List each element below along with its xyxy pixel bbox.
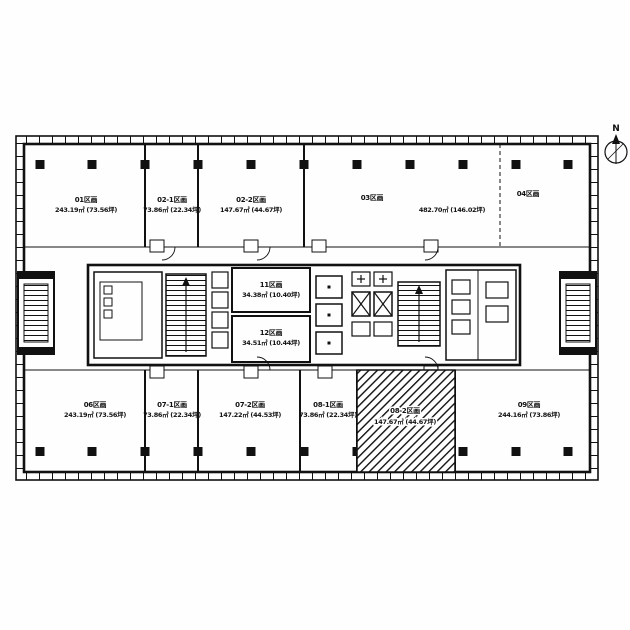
room-labels: 01区画 243.19㎡ (73.56坪) 02-1区画 73.86㎡ (22.… (55, 190, 560, 426)
room-09-area: 244.16㎡ (73.86坪) (498, 410, 560, 419)
floor-plan-page: N 01区画 243.19㎡ (73.56坪) 02-1区画 73.86㎡ (2… (0, 0, 630, 630)
room-02-1-label: 02-1区画 (157, 196, 187, 204)
room-01-label: 01区画 (75, 196, 98, 204)
room-07-1-area: 73.86㎡ (22.34坪) (143, 410, 201, 419)
outer-wall (16, 136, 598, 480)
room-08-2-area: 147.67㎡ (44.67坪) (374, 417, 436, 426)
north-arrow-icon (612, 134, 620, 144)
room-12-label: 12区画 (260, 329, 283, 337)
room-02-1-area: 73.86㎡ (22.34坪) (143, 205, 201, 214)
room-04-label: 04区画 (517, 190, 540, 198)
room-03-area: 482.70㎡ (146.02坪) (419, 205, 486, 214)
room-08-2-label: 08-2区画 (390, 407, 420, 415)
room-11 (232, 268, 310, 312)
door-arc (257, 247, 270, 260)
floor-plan-drawing: N 01区画 243.19㎡ (73.56坪) 02-1区画 73.86㎡ (2… (0, 0, 630, 630)
room-09-label: 09区画 (518, 401, 541, 409)
room-03-label: 03区画 (361, 194, 384, 202)
tenant-partitions (24, 144, 590, 472)
room-07-1-label: 07-1区画 (157, 401, 187, 409)
room-01-area: 243.19㎡ (73.56坪) (55, 205, 117, 214)
room-07-2-label: 07-2区画 (235, 401, 265, 409)
room-11-area: 34.38㎡ (10.40坪) (242, 290, 300, 299)
room-11-label: 11区画 (260, 281, 283, 289)
stairwell-b (398, 282, 440, 346)
room-08-1-label: 08-1区画 (313, 401, 343, 409)
compass-label: N (612, 124, 620, 134)
room-06-label: 06区画 (84, 401, 107, 409)
building-shell (16, 136, 598, 480)
door-arc (257, 357, 270, 370)
room-02-2-label: 02-2区画 (236, 196, 266, 204)
inner-wall (24, 144, 590, 472)
room-12-area: 34.51㎡ (10.44坪) (242, 338, 300, 347)
emergency-stair-west (18, 272, 54, 354)
restroom-block-west (94, 272, 162, 358)
room-07-2-area: 147.22㎡ (44.53坪) (219, 410, 281, 419)
emergency-stair-east (560, 272, 596, 354)
room-06-area: 243.19㎡ (73.56坪) (64, 410, 126, 419)
north-compass: N (605, 124, 627, 164)
room-02-2-area: 147.67㎡ (44.67坪) (220, 205, 282, 214)
service-shafts (212, 272, 228, 348)
elevator-bank-east (352, 272, 392, 336)
elevator-bank-west (316, 276, 342, 354)
room-08-1-area: 73.86㎡ (22.34坪) (299, 410, 357, 419)
stairwell-a (166, 274, 206, 356)
service-core (88, 265, 520, 365)
restroom-block-east (446, 270, 516, 360)
